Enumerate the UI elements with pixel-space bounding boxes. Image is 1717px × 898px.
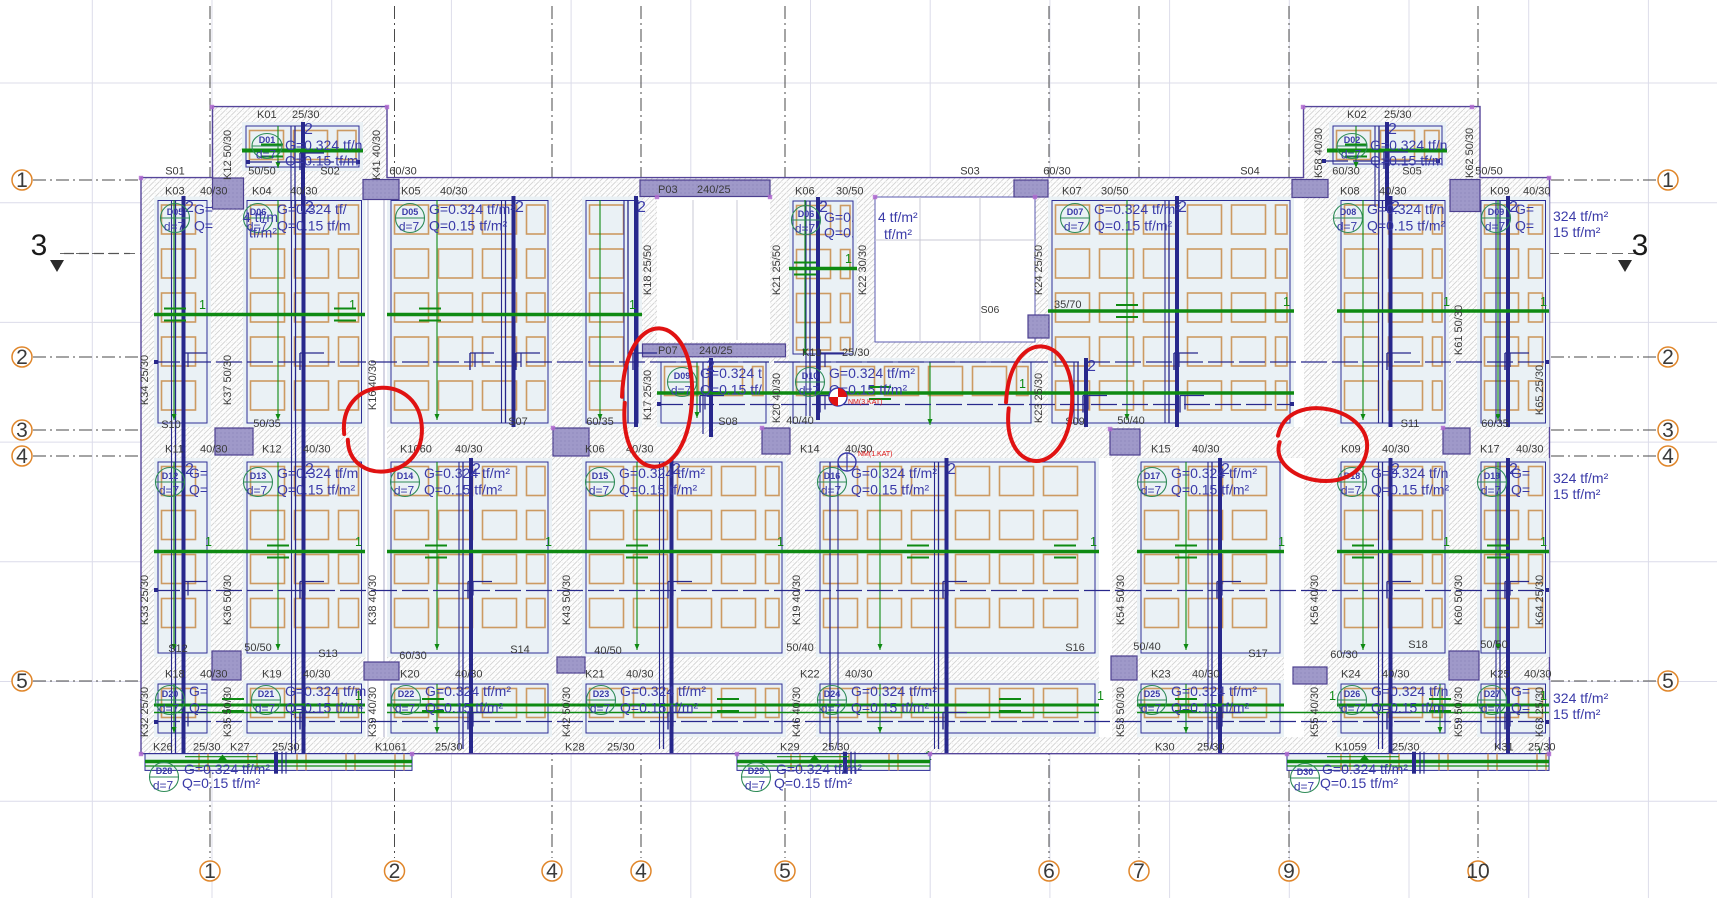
svg-text:K38 40/30: K38 40/30: [367, 575, 379, 625]
svg-text:Q=0.15 tf/m²: Q=0.15 tf/m²: [1171, 482, 1250, 498]
svg-text:Q=0.15 tf/m²: Q=0.15 tf/m²: [1367, 218, 1446, 234]
svg-text:K12 50/30: K12 50/30: [222, 130, 234, 180]
svg-text:d=7: d=7: [1341, 484, 1362, 498]
svg-text:1: 1: [629, 298, 636, 312]
svg-text:Q=: Q=: [1511, 700, 1530, 716]
svg-text:D30: D30: [1297, 767, 1314, 777]
svg-text:K34 25/30: K34 25/30: [139, 355, 151, 405]
svg-text:G=: G=: [194, 201, 213, 217]
svg-text:K30: K30: [1155, 742, 1175, 754]
svg-text:15 tf/m²: 15 tf/m²: [1553, 224, 1601, 240]
svg-text:K22: K22: [800, 669, 820, 681]
svg-text:D20: D20: [162, 689, 179, 699]
svg-text:D22: D22: [398, 689, 415, 699]
svg-text:K1061: K1061: [375, 742, 407, 754]
svg-text:d=7: d=7: [589, 484, 610, 498]
svg-text:D17: D17: [1144, 471, 1161, 481]
svg-text:K46 40/30: K46 40/30: [791, 687, 803, 737]
svg-text:Q=0.15 tf/m²: Q=0.15 tf/m²: [182, 775, 261, 791]
svg-text:d=7: d=7: [795, 222, 816, 236]
svg-text:50/35: 50/35: [253, 418, 281, 430]
svg-text:D10: D10: [802, 371, 819, 381]
svg-text:1: 1: [349, 298, 356, 312]
svg-text:D09: D09: [1488, 207, 1505, 217]
svg-text:K56 40/30: K56 40/30: [1309, 575, 1321, 625]
svg-text:G=0.324 tf/n: G=0.324 tf/n: [1367, 201, 1444, 217]
svg-text:1: 1: [1278, 535, 1285, 549]
svg-text:2: 2: [1388, 121, 1397, 138]
svg-text:K17 25/30: K17 25/30: [642, 370, 654, 420]
svg-text:d=7: d=7: [1141, 484, 1162, 498]
svg-text:G=0.324 tf/m: G=0.324 tf/m: [285, 683, 366, 699]
svg-text:60/35: 60/35: [586, 416, 614, 428]
svg-text:K16 40/30: K16 40/30: [367, 360, 379, 410]
svg-text:K18 25/50: K18 25/50: [642, 245, 654, 295]
svg-text:2: 2: [515, 199, 524, 216]
svg-text:d=7: d=7: [247, 484, 268, 498]
svg-text:2: 2: [947, 461, 956, 478]
svg-text:60/30: 60/30: [1330, 649, 1358, 661]
svg-text:K37 50/30: K37 50/30: [222, 355, 234, 405]
svg-text:d=7: d=7: [1481, 702, 1502, 716]
svg-text:G=0.324 tf/: G=0.324 tf/: [277, 201, 347, 217]
svg-text:60/30: 60/30: [1332, 166, 1360, 178]
svg-text:S13: S13: [318, 648, 338, 660]
svg-text:40/40: 40/40: [786, 415, 814, 427]
svg-text:d=7: d=7: [821, 702, 842, 716]
svg-text:Q=0.15 tf/m²: Q=0.15 tf/m²: [277, 482, 356, 498]
svg-text:2: 2: [185, 199, 194, 216]
svg-text:324 tf/m²: 324 tf/m²: [1553, 470, 1609, 486]
svg-text:Q=0.15 tf/m: Q=0.15 tf/m: [285, 153, 359, 169]
svg-text:40/30: 40/30: [1382, 669, 1410, 681]
svg-text:25/30: 25/30: [435, 742, 463, 754]
svg-text:40/30: 40/30: [1523, 186, 1551, 198]
svg-text:d=7: d=7: [1064, 220, 1085, 234]
svg-text:1: 1: [777, 535, 784, 549]
svg-text:K62 50/30: K62 50/30: [1464, 128, 1476, 178]
svg-text:25/30: 25/30: [842, 347, 870, 359]
svg-text:D21: D21: [258, 689, 275, 699]
svg-text:d=7: d=7: [1294, 780, 1315, 794]
svg-text:D13: D13: [250, 471, 267, 481]
svg-text:2: 2: [16, 346, 28, 369]
svg-text:K33 25/30: K33 25/30: [139, 575, 151, 625]
svg-text:K53 50/30: K53 50/30: [1115, 687, 1127, 737]
svg-text:d=7: d=7: [395, 702, 416, 716]
svg-text:S03: S03: [960, 166, 980, 178]
svg-text:K03: K03: [165, 186, 185, 198]
svg-text:1: 1: [1097, 689, 1104, 703]
svg-text:K12: K12: [262, 444, 282, 456]
svg-text:1: 1: [1329, 689, 1336, 703]
svg-text:60/30: 60/30: [389, 166, 417, 178]
svg-text:6: 6: [1043, 860, 1055, 883]
svg-text:K19 40/30: K19 40/30: [791, 575, 803, 625]
svg-text:K65 25/30: K65 25/30: [1534, 365, 1546, 415]
svg-text:K27: K27: [230, 742, 250, 754]
svg-text:1: 1: [1090, 535, 1097, 549]
svg-text:d=7: d=7: [256, 148, 277, 162]
svg-text:40/30: 40/30: [455, 444, 483, 456]
svg-text:K61 50/30: K61 50/30: [1453, 305, 1465, 355]
svg-text:40/30: 40/30: [200, 186, 228, 198]
svg-text:K29: K29: [780, 742, 800, 754]
svg-text:50/40: 50/40: [786, 642, 814, 654]
svg-text:324 tf/m²: 324 tf/m²: [1553, 690, 1609, 706]
svg-text:G=0.324 tf/m²: G=0.324 tf/m²: [851, 683, 937, 699]
svg-text:Q=0.15 tf/m²: Q=0.15 tf/m²: [774, 775, 853, 791]
svg-text:K60 50/30: K60 50/30: [1453, 575, 1465, 625]
svg-text:K59 50/30: K59 50/30: [1453, 687, 1465, 737]
svg-text:G=0.324 tf/m²: G=0.324 tf/m²: [425, 683, 511, 699]
svg-text:3: 3: [31, 229, 48, 262]
svg-text:K07: K07: [1062, 186, 1082, 198]
svg-text:240/25: 240/25: [697, 184, 731, 196]
svg-text:40/30: 40/30: [303, 669, 331, 681]
svg-text:K20 40/30: K20 40/30: [771, 373, 783, 423]
svg-text:D14: D14: [397, 471, 414, 481]
svg-text:D27: D27: [1484, 689, 1501, 699]
svg-text:D06: D06: [798, 209, 815, 219]
svg-text:K15: K15: [1151, 444, 1171, 456]
svg-text:d=7: d=7: [1337, 220, 1358, 234]
svg-text:1: 1: [1662, 169, 1674, 192]
svg-text:d=7: d=7: [159, 702, 180, 716]
svg-text:D19: D19: [1484, 471, 1501, 481]
svg-text:30/50: 30/50: [836, 186, 864, 198]
svg-text:D26: D26: [1344, 689, 1361, 699]
svg-text:5: 5: [779, 860, 791, 883]
svg-text:25/30: 25/30: [1197, 742, 1225, 754]
svg-text:P03: P03: [658, 184, 678, 196]
svg-text:D23: D23: [593, 689, 610, 699]
svg-text:K02: K02: [1347, 109, 1367, 121]
svg-text:G=0.324 tf/m²: G=0.324 tf/m²: [1171, 465, 1257, 481]
svg-text:4 tf/m: 4 tf/m: [243, 209, 278, 225]
svg-text:40/30: 40/30: [1516, 444, 1544, 456]
svg-text:S14: S14: [510, 644, 530, 656]
svg-text:1: 1: [355, 535, 362, 549]
svg-text:K64 25/30: K64 25/30: [1534, 575, 1546, 625]
svg-text:15 tf/m²: 15 tf/m²: [1553, 706, 1601, 722]
svg-text:G=0.324 tf/m: G=0.324 tf/m: [277, 465, 358, 481]
svg-text:1: 1: [204, 860, 216, 883]
svg-text:40/30: 40/30: [1382, 444, 1410, 456]
svg-text:D25: D25: [1144, 689, 1161, 699]
svg-text:2: 2: [389, 860, 401, 883]
svg-text:S10: S10: [161, 419, 181, 431]
svg-text:1: 1: [199, 298, 206, 312]
svg-text:K19: K19: [262, 669, 282, 681]
svg-text:Q=0.15 tf/m²: Q=0.15 tf/m²: [1171, 700, 1250, 716]
svg-text:7: 7: [1133, 860, 1145, 883]
svg-text:D24: D24: [824, 689, 841, 699]
svg-text:K01: K01: [257, 109, 277, 121]
svg-text:K18: K18: [165, 669, 185, 681]
svg-text:D09: D09: [674, 371, 691, 381]
svg-text:K54 50/30: K54 50/30: [1115, 575, 1127, 625]
svg-text:d=7: d=7: [1341, 148, 1362, 162]
svg-text:1: 1: [1283, 295, 1290, 309]
svg-text:1: 1: [205, 535, 212, 549]
svg-text:1: 1: [1019, 377, 1026, 391]
svg-text:Q=: Q=: [189, 700, 208, 716]
svg-text:2: 2: [304, 121, 313, 138]
svg-text:d=7: d=7: [399, 220, 420, 234]
svg-text:K43 50/30: K43 50/30: [561, 575, 573, 625]
svg-text:S07: S07: [508, 416, 528, 428]
svg-text:Q=0.15 tf/m²: Q=0.15 tf/m²: [620, 700, 699, 716]
svg-text:S18: S18: [1408, 639, 1428, 651]
svg-text:25/30: 25/30: [1528, 742, 1556, 754]
svg-text:4: 4: [546, 860, 558, 883]
svg-text:K32 25/30: K32 25/30: [139, 687, 151, 737]
svg-text:G=: G=: [1511, 683, 1530, 699]
svg-text:Q=0.15 tf/m²: Q=0.15 tf/m²: [1094, 218, 1173, 234]
svg-text:G=0.324 t: G=0.324 t: [700, 365, 762, 381]
svg-text:tf/m²: tf/m²: [249, 225, 277, 241]
svg-text:Q=0.15 tf/m²: Q=0.15 tf/m²: [429, 218, 508, 234]
svg-text:K17: K17: [1480, 444, 1500, 456]
svg-text:K08: K08: [1340, 186, 1360, 198]
svg-text:K11: K11: [165, 444, 184, 456]
svg-text:D15: D15: [592, 471, 609, 481]
svg-text:K39 40/30: K39 40/30: [367, 687, 379, 737]
svg-text:Q=: Q=: [1511, 482, 1530, 498]
svg-text:K1059: K1059: [1335, 742, 1367, 754]
svg-text:G=0.324 tf/n: G=0.324 tf/n: [1370, 137, 1447, 153]
svg-text:50/50: 50/50: [1475, 166, 1503, 178]
svg-text:324 tf/m²: 324 tf/m²: [1553, 208, 1609, 224]
svg-text:50/40: 50/40: [1117, 415, 1145, 427]
svg-text:tf/m²: tf/m²: [884, 226, 912, 242]
svg-text:60/30: 60/30: [1043, 166, 1071, 178]
svg-text:Q=0.: Q=0.: [824, 225, 855, 241]
svg-text:3: 3: [1662, 419, 1674, 442]
svg-text:Q=0.15 tf/m²: Q=0.15 tf/m²: [1371, 482, 1450, 498]
svg-text:5: 5: [16, 670, 28, 693]
svg-text:D12: D12: [162, 471, 179, 481]
svg-text:K09: K09: [1341, 444, 1361, 456]
svg-text:d=7: d=7: [821, 484, 842, 498]
svg-text:d=7: d=7: [799, 384, 820, 398]
svg-text:D29: D29: [748, 766, 765, 776]
svg-text:G=0.324 tf/n: G=0.324 tf/n: [1371, 465, 1448, 481]
svg-text:K06: K06: [585, 444, 605, 456]
svg-text:35/70: 35/70: [1054, 299, 1082, 311]
svg-text:50/50: 50/50: [244, 642, 272, 654]
svg-text:K10: K10: [802, 347, 822, 359]
svg-text:K04: K04: [252, 186, 272, 198]
svg-text:K24: K24: [1341, 669, 1361, 681]
svg-text:2: 2: [1662, 346, 1674, 369]
svg-text:G=0.324 tf/m²: G=0.324 tf/m²: [1171, 683, 1257, 699]
svg-text:K63 25/30: K63 25/30: [1534, 687, 1546, 737]
svg-text:NM(1.KAT): NM(1.KAT): [858, 451, 892, 458]
svg-text:K55 40/30: K55 40/30: [1309, 687, 1321, 737]
svg-text:K20: K20: [400, 669, 420, 681]
svg-text:10: 10: [1466, 860, 1489, 883]
svg-text:1: 1: [1443, 535, 1450, 549]
svg-text:4: 4: [1662, 445, 1674, 468]
svg-text:4: 4: [635, 860, 647, 883]
svg-text:K14: K14: [800, 444, 820, 456]
svg-text:1: 1: [1443, 295, 1450, 309]
svg-text:K22 30/30: K22 30/30: [857, 245, 869, 295]
svg-text:60/30: 60/30: [399, 650, 427, 662]
svg-text:D01: D01: [259, 135, 276, 145]
svg-text:d=7: d=7: [255, 702, 276, 716]
svg-text:Q=0.15 tf/m: Q=0.15 tf/m: [1371, 700, 1445, 716]
svg-text:d=7: d=7: [1485, 220, 1506, 234]
svg-text:40/30: 40/30: [1192, 444, 1220, 456]
svg-text:40/30: 40/30: [845, 669, 873, 681]
svg-text:Q=0.15 tf/m²: Q=0.15 tf/m²: [619, 482, 698, 498]
svg-text:S12: S12: [168, 643, 188, 655]
svg-text:D28: D28: [156, 766, 173, 776]
svg-text:60/35: 60/35: [1481, 418, 1509, 430]
svg-text:K36 50/30: K36 50/30: [222, 575, 234, 625]
svg-text:Q=0.15 tf/m: Q=0.15 tf/m: [1370, 153, 1444, 169]
svg-text:3: 3: [16, 419, 28, 442]
svg-text:S04: S04: [1240, 166, 1260, 178]
svg-text:G=0.: G=0.: [824, 209, 855, 225]
svg-text:40/30: 40/30: [290, 186, 318, 198]
svg-text:D05: D05: [167, 207, 184, 217]
svg-text:S08: S08: [718, 416, 738, 428]
svg-text:40/30: 40/30: [440, 186, 468, 198]
svg-text:G=: G=: [189, 465, 208, 481]
svg-text:50/50: 50/50: [248, 166, 276, 178]
svg-text:S06: S06: [981, 304, 1000, 316]
svg-text:40/30: 40/30: [455, 669, 483, 681]
svg-text:3: 3: [1632, 229, 1649, 262]
svg-text:K41 40/30: K41 40/30: [371, 130, 383, 180]
svg-text:d=7: d=7: [671, 384, 692, 398]
svg-text:Q=0.15 tf/m²: Q=0.15 tf/m²: [851, 482, 930, 498]
svg-text:1: 1: [1540, 295, 1547, 309]
svg-text:d=7: d=7: [164, 220, 185, 234]
svg-text:G=: G=: [1515, 201, 1534, 217]
svg-text:15 tf/m²: 15 tf/m²: [1553, 486, 1601, 502]
svg-text:40/50: 40/50: [594, 645, 622, 657]
svg-text:4 tf/m²: 4 tf/m²: [878, 209, 918, 225]
svg-text:K06: K06: [795, 186, 815, 198]
svg-text:d=7: d=7: [745, 779, 766, 793]
svg-text:S01: S01: [165, 166, 185, 178]
svg-text:D08: D08: [1340, 207, 1357, 217]
svg-text:25/30: 25/30: [292, 109, 320, 121]
svg-text:40/30: 40/30: [200, 444, 228, 456]
svg-text:1: 1: [1540, 535, 1547, 549]
svg-text:G=: G=: [1511, 465, 1530, 481]
svg-text:Q=: Q=: [189, 482, 208, 498]
svg-text:240/25: 240/25: [699, 345, 733, 357]
svg-text:S11: S11: [1401, 418, 1420, 430]
svg-text:P07: P07: [658, 345, 678, 357]
svg-text:D02: D02: [1344, 135, 1361, 145]
svg-text:1: 1: [545, 535, 552, 549]
svg-text:d=7: d=7: [1341, 702, 1362, 716]
svg-text:50/40: 50/40: [1133, 641, 1161, 653]
svg-text:9: 9: [1283, 860, 1295, 883]
svg-text:K42 50/30: K42 50/30: [561, 687, 573, 737]
svg-text:d=7: d=7: [153, 779, 174, 793]
svg-text:d=7: d=7: [590, 702, 611, 716]
svg-text:G=0.324 tf/n: G=0.324 tf/n: [1371, 683, 1448, 699]
svg-text:d=7: d=7: [1481, 484, 1502, 498]
svg-text:Q=0.15 tf/m: Q=0.15 tf/m: [277, 218, 351, 234]
svg-text:1: 1: [16, 169, 28, 192]
svg-text:D07: D07: [1067, 207, 1084, 217]
svg-text:S17: S17: [1248, 648, 1268, 660]
svg-text:G=: G=: [189, 683, 208, 699]
svg-text:NM(3.KAT): NM(3.KAT): [848, 399, 882, 406]
svg-text:d=7: d=7: [159, 484, 180, 498]
svg-text:40/30: 40/30: [303, 444, 331, 456]
svg-text:K35 50/30: K35 50/30: [222, 687, 234, 737]
svg-text:K09: K09: [1490, 186, 1510, 198]
svg-text:50/50: 50/50: [1480, 639, 1508, 651]
svg-text:K26: K26: [153, 742, 173, 754]
svg-text:25/30: 25/30: [193, 742, 221, 754]
svg-text:K23 25/30: K23 25/30: [1033, 373, 1045, 423]
svg-text:Q=: Q=: [194, 218, 213, 234]
svg-text:G=0.324 tf/m²: G=0.324 tf/m²: [1094, 201, 1180, 217]
svg-text:G=0.324 tf/m²: G=0.324 tf/m²: [829, 365, 915, 381]
svg-text:2: 2: [637, 199, 646, 216]
svg-text:d=7: d=7: [394, 484, 415, 498]
svg-text:K31: K31: [1494, 742, 1514, 754]
svg-text:30/50: 30/50: [1101, 186, 1129, 198]
svg-text:Q=0.15 tf/m²: Q=0.15 tf/m²: [425, 700, 504, 716]
svg-text:D16: D16: [824, 471, 841, 481]
svg-text:G=0.324 tf/m²: G=0.324 tf/m²: [851, 465, 937, 481]
svg-text:K05: K05: [401, 186, 421, 198]
svg-text:K21 25/50: K21 25/50: [771, 245, 783, 295]
svg-text:G=0.324 tf/m²: G=0.324 tf/m²: [429, 201, 515, 217]
svg-text:25/30: 25/30: [1384, 109, 1412, 121]
svg-text:Q=0.15 tf/: Q=0.15 tf/: [700, 382, 762, 398]
svg-text:D05: D05: [402, 207, 419, 217]
svg-text:G=0.324 tf/m²: G=0.324 tf/m²: [620, 683, 706, 699]
svg-text:G=0.324 tf/n: G=0.324 tf/n: [285, 137, 362, 153]
svg-text:K58 40/30: K58 40/30: [1313, 128, 1325, 178]
svg-text:d=7: d=7: [1141, 702, 1162, 716]
svg-text:1: 1: [845, 252, 852, 266]
svg-text:S16: S16: [1065, 642, 1085, 654]
svg-text:Q=: Q=: [1515, 218, 1534, 234]
svg-text:K21: K21: [585, 669, 605, 681]
svg-text:2: 2: [1087, 358, 1096, 375]
svg-text:40/30: 40/30: [626, 669, 654, 681]
svg-text:40/30: 40/30: [1379, 186, 1407, 198]
svg-text:5: 5: [1662, 670, 1674, 693]
svg-text:40/30: 40/30: [1192, 669, 1220, 681]
svg-text:Q=0.15 tf/m²: Q=0.15 tf/m²: [285, 700, 364, 716]
svg-text:4: 4: [16, 445, 28, 468]
svg-text:K24 25/50: K24 25/50: [1033, 245, 1045, 295]
svg-text:K25: K25: [1490, 669, 1510, 681]
svg-text:40/30: 40/30: [200, 669, 228, 681]
svg-text:25/30: 25/30: [607, 742, 635, 754]
svg-text:K23: K23: [1151, 669, 1171, 681]
svg-text:K28: K28: [565, 742, 585, 754]
svg-text:40/30: 40/30: [1524, 669, 1552, 681]
svg-text:G=0.324 tf/m²: G=0.324 tf/m²: [424, 465, 510, 481]
svg-text:Q=0.15 tf/m²: Q=0.15 tf/m²: [1320, 775, 1399, 791]
